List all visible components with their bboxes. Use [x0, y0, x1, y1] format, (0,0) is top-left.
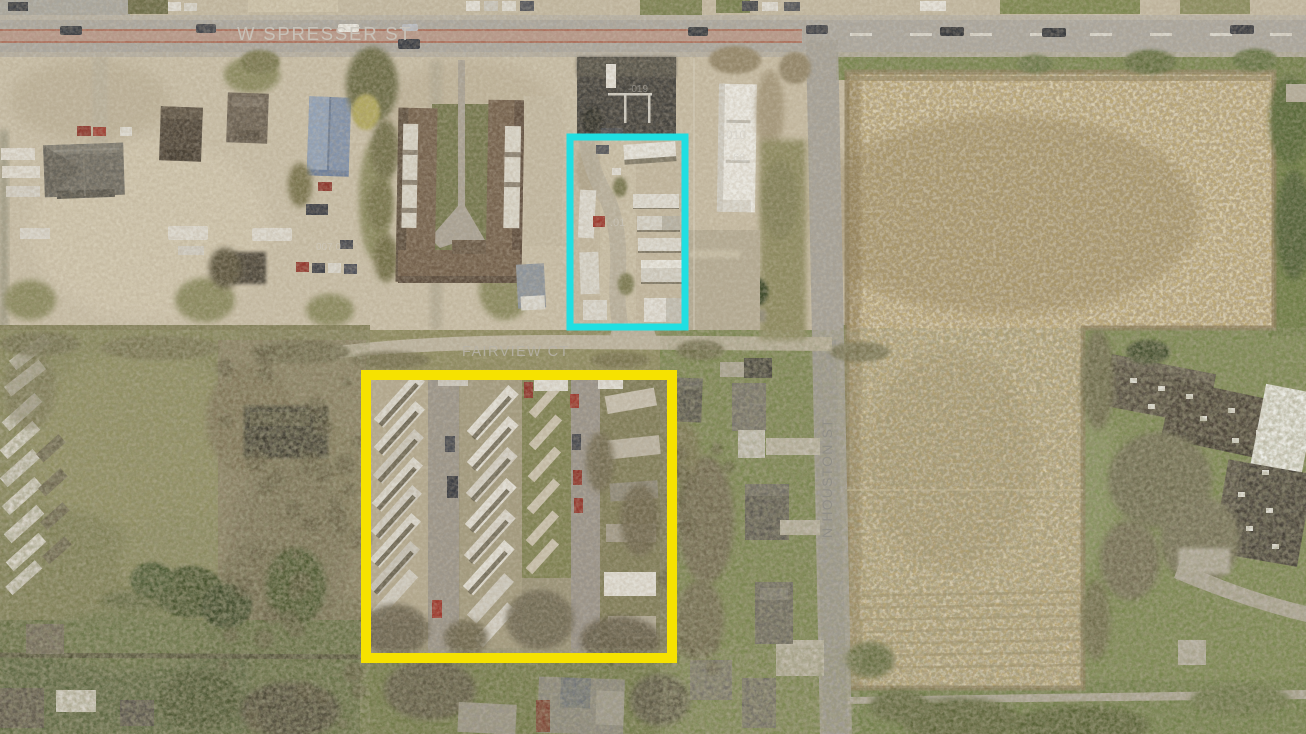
svg-text:007 0: 007 0: [316, 242, 341, 253]
svg-text:.68: .68: [730, 152, 745, 164]
svg-text:-019: -019: [628, 84, 648, 95]
svg-text:.01: .01: [610, 217, 625, 229]
svg-text:-010: -010: [722, 128, 746, 142]
svg-text:N HOUSTON ST: N HOUSTON ST: [819, 418, 835, 538]
svg-text:W SPRESSER ST: W SPRESSER ST: [237, 23, 413, 44]
svg-text:FAIRVIEW CT: FAIRVIEW CT: [462, 344, 570, 360]
